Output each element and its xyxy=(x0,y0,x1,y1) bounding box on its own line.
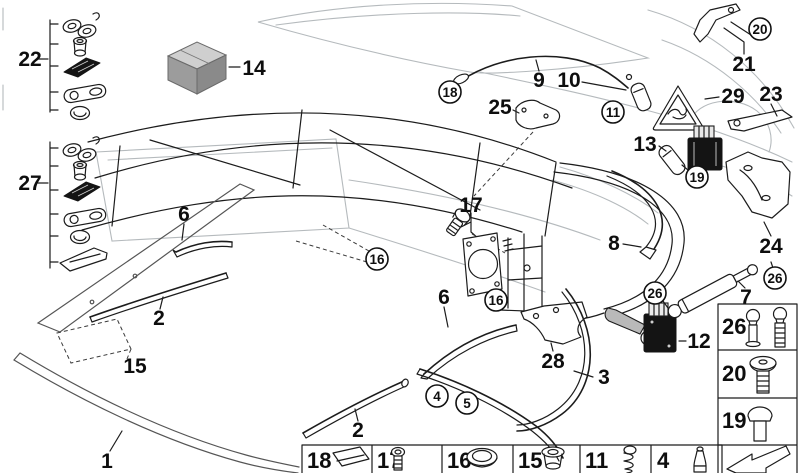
shoulder-bolt-icon xyxy=(750,357,776,394)
callout-12[interactable]: 12 xyxy=(687,330,710,353)
part-6-seal-left xyxy=(173,224,232,257)
mounting-plate xyxy=(463,233,513,296)
grommet-icon xyxy=(542,447,564,469)
callout-21[interactable]: 21 xyxy=(732,53,756,76)
part-13-cylinder xyxy=(657,143,688,177)
part-24-bracket xyxy=(726,152,790,236)
callout-24[interactable]: 24 xyxy=(759,235,783,258)
svg-text:18: 18 xyxy=(442,85,458,100)
callout-15[interactable]: 15 xyxy=(123,355,147,378)
callout-circle-4[interactable]: 4 xyxy=(426,385,448,407)
callout-27[interactable]: 27 xyxy=(18,172,41,195)
callout-circle-18[interactable]: 18 xyxy=(439,81,461,103)
pad-icon xyxy=(333,447,369,466)
side-num-26[interactable]: 26 xyxy=(722,314,746,339)
callout-2-lower[interactable]: 2 xyxy=(352,419,364,442)
svg-text:19: 19 xyxy=(689,170,704,185)
callout-13[interactable]: 13 xyxy=(633,133,656,156)
callout-circle-26-left[interactable]: 26 xyxy=(644,282,666,304)
callout-7[interactable]: 7 xyxy=(740,286,752,309)
callout-3[interactable]: 3 xyxy=(598,366,610,389)
legend-num-4[interactable]: 4 xyxy=(657,448,670,473)
callout-2-left[interactable]: 2 xyxy=(153,307,165,330)
callout-6-right[interactable]: 6 xyxy=(438,286,450,309)
legend-num-11[interactable]: 11 xyxy=(585,448,608,473)
callout-10[interactable]: 10 xyxy=(557,69,580,92)
front-frame-bar xyxy=(38,184,254,363)
part-1-seal xyxy=(14,353,299,473)
side-num-19[interactable]: 19 xyxy=(722,408,746,433)
svg-text:16: 16 xyxy=(488,293,504,308)
callout-25[interactable]: 25 xyxy=(488,96,512,119)
callout-circle-26-right[interactable]: 26 xyxy=(764,267,786,289)
callout-circle-16-lower[interactable]: 16 xyxy=(485,289,507,311)
pin-icon xyxy=(694,447,706,472)
screw-icon xyxy=(392,448,405,471)
callout-1[interactable]: 1 xyxy=(101,450,113,473)
mushroom-pin-icon xyxy=(748,407,772,441)
wedge-block-icon xyxy=(60,248,107,271)
part-29-warning-triangle xyxy=(653,86,719,130)
folding-top-frame xyxy=(82,110,684,320)
legend-num-18[interactable]: 18 xyxy=(307,448,331,473)
callout-9[interactable]: 9 xyxy=(533,69,545,92)
svg-text:16: 16 xyxy=(369,252,385,267)
svg-text:11: 11 xyxy=(606,105,621,120)
svg-text:20: 20 xyxy=(752,22,767,37)
callout-14[interactable]: 14 xyxy=(242,57,266,80)
part-28-bracket xyxy=(521,302,587,351)
callout-circle-16-upper[interactable]: 16 xyxy=(366,248,388,270)
callout-17[interactable]: 17 xyxy=(459,194,482,217)
legend-num-15[interactable]: 15 xyxy=(518,448,542,473)
direction-arrow-icon xyxy=(727,446,790,473)
svg-text:5: 5 xyxy=(463,396,471,411)
legend-strip: 18 17 16 15 11 4 xyxy=(302,445,722,473)
callout-circle-20[interactable]: 20 xyxy=(749,18,771,40)
callout-29[interactable]: 29 xyxy=(721,85,744,108)
callout-circle-11[interactable]: 11 xyxy=(602,101,624,123)
side-num-20[interactable]: 20 xyxy=(722,361,746,386)
callout-circle-5[interactable]: 5 xyxy=(456,392,478,414)
callout-28[interactable]: 28 xyxy=(541,350,565,373)
side-panel: 26 20 19 xyxy=(718,304,797,473)
spring-icon xyxy=(624,446,636,473)
svg-text:26: 26 xyxy=(647,286,663,301)
part-14-box xyxy=(168,42,240,94)
callout-8[interactable]: 8 xyxy=(608,232,620,255)
svg-text:26: 26 xyxy=(767,271,783,286)
actuator-module xyxy=(682,126,722,170)
ball-stud-icon xyxy=(746,308,787,348)
folding-top-parts-diagram: 22 27 14 9 10 25 13 29 23 21 24 8 7 12 1… xyxy=(0,0,800,473)
dome-cap-icon xyxy=(467,449,497,468)
callout-circle-19[interactable]: 19 xyxy=(686,166,708,188)
part-6-seal-right xyxy=(421,307,517,379)
callout-6-left[interactable]: 6 xyxy=(178,203,190,226)
part-22-fastener-set xyxy=(38,13,107,120)
diagram-canvas: 22 27 14 9 10 25 13 29 23 21 24 8 7 12 1… xyxy=(0,0,800,473)
svg-text:4: 4 xyxy=(433,389,441,404)
callout-23[interactable]: 23 xyxy=(759,83,782,106)
callout-22[interactable]: 22 xyxy=(18,48,41,71)
